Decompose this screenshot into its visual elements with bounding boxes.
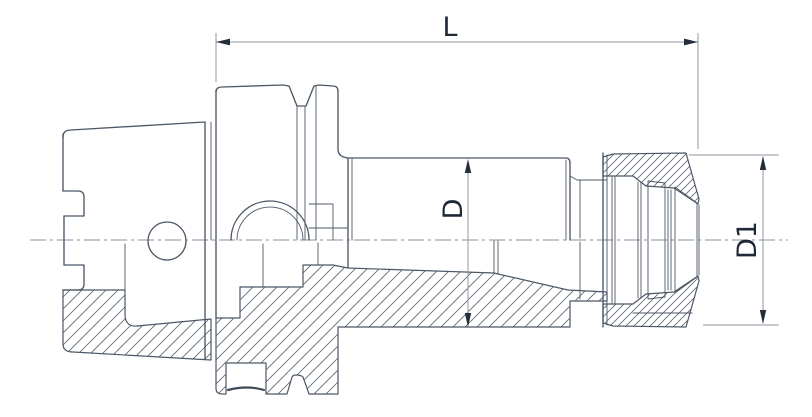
flange-step-lines xyxy=(309,204,348,240)
arrowhead-down xyxy=(760,310,766,324)
bore-step-edges-right xyxy=(494,241,498,274)
body-section-hatch xyxy=(216,265,607,394)
shank-top-edge xyxy=(63,122,205,137)
shank-side-hole xyxy=(148,222,186,260)
drive-slot-bottom-arc xyxy=(228,388,264,391)
nut-section-hatch-bottom xyxy=(603,276,699,327)
body-top-edge xyxy=(348,158,570,163)
arrowhead-up xyxy=(465,159,471,173)
body-diameter-label: D xyxy=(438,199,469,220)
shank-groove-upper xyxy=(63,191,84,216)
arrowhead-right xyxy=(684,39,698,46)
nut-section-hatch-top xyxy=(603,153,699,204)
arrowhead-up xyxy=(760,156,766,170)
arrowhead-left xyxy=(216,39,230,46)
collet-ring-4 xyxy=(668,190,671,290)
shank-groove-lower xyxy=(63,265,84,290)
thread-relief-step xyxy=(570,176,607,299)
flange-front-face-upper xyxy=(338,91,348,158)
flange-top-edge-v-groove xyxy=(216,85,338,106)
dome-inner-arc xyxy=(237,207,303,240)
dimension-length: L xyxy=(216,12,698,149)
groove-silhouette-lines xyxy=(297,86,316,240)
hsk-shank xyxy=(63,122,211,360)
collet-ring-1 xyxy=(612,177,615,303)
technical-drawing-page: L D D1 xyxy=(0,0,812,417)
flange xyxy=(216,85,607,394)
collet-chuck-drawing: L D D1 xyxy=(0,0,812,417)
shank-section-hatch xyxy=(63,290,211,360)
length-label: L xyxy=(442,12,457,43)
nose-diameter-label: D1 xyxy=(732,221,763,259)
